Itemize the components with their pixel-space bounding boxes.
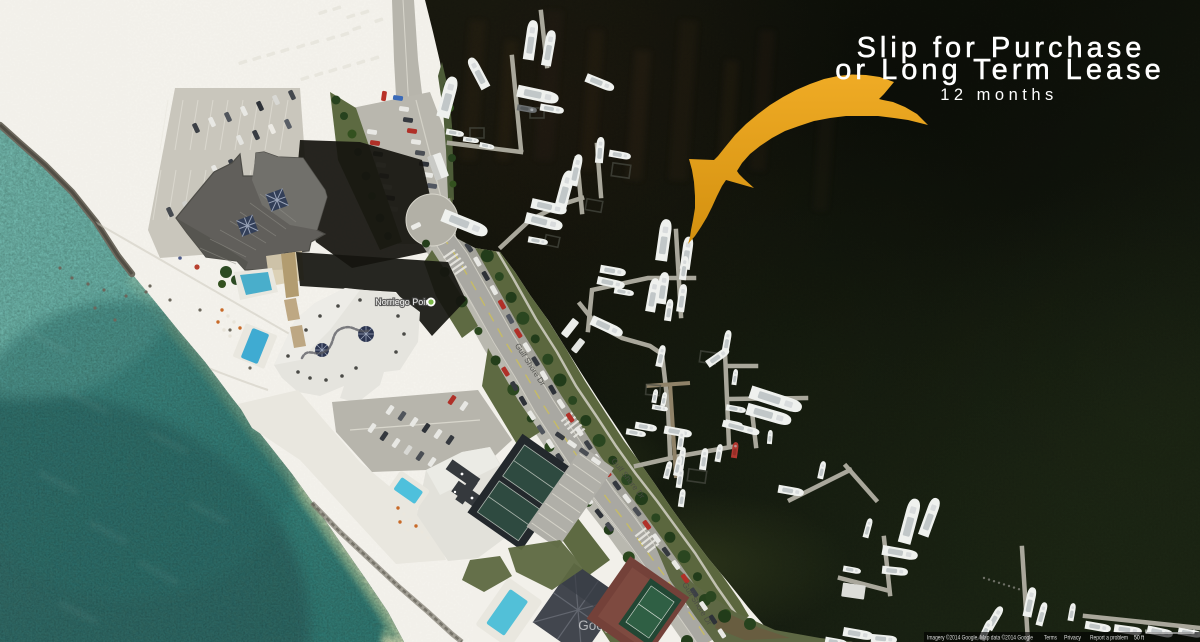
svg-text:Terms: Terms <box>1044 636 1057 642</box>
svg-text:50 ft: 50 ft <box>1134 636 1144 642</box>
svg-text:12 months: 12 months <box>940 86 1058 104</box>
svg-text:Privacy: Privacy <box>1064 636 1081 642</box>
svg-text:Norriego Point: Norriego Point <box>375 297 433 307</box>
svg-text:or Long Term Lease: or Long Term Lease <box>835 54 1164 86</box>
svg-text:Report a problem: Report a problem <box>1090 636 1128 642</box>
svg-text:Imagery ©2014 Google, Map data: Imagery ©2014 Google, Map data ©2014 Goo… <box>927 635 1034 642</box>
